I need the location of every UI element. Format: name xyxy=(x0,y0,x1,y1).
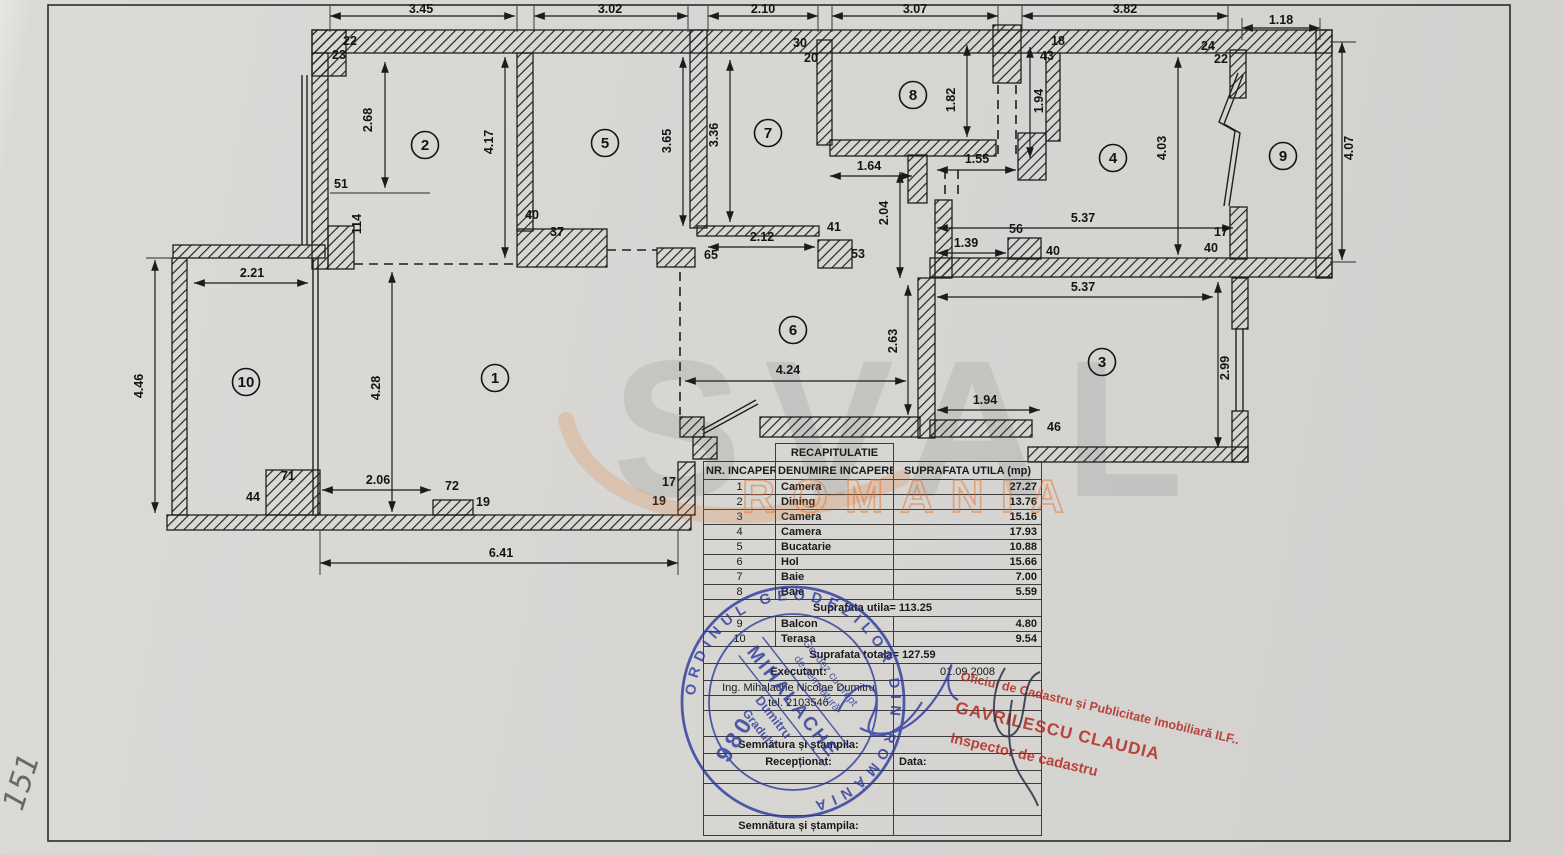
table-cell: 13.76 xyxy=(894,495,1042,510)
dimension-label: 37 xyxy=(550,225,564,239)
wall-segment xyxy=(172,258,187,515)
table-cell: SUPRAFATA UTILA (mp) xyxy=(894,462,1042,480)
table-row: 8Baie5.59 xyxy=(704,585,1042,600)
wall-segment xyxy=(817,40,832,145)
table-row xyxy=(704,771,1042,784)
door-leaf xyxy=(703,404,758,434)
wall-segment xyxy=(1230,207,1247,259)
room-number-circle xyxy=(1089,349,1116,376)
table-row: tel. 2103546 xyxy=(704,696,1042,711)
dimension-label: 3.65 xyxy=(660,129,674,153)
table-cell: 5.59 xyxy=(894,585,1042,600)
room-number-circle xyxy=(592,130,619,157)
wall-segment xyxy=(1028,447,1248,462)
table-cell xyxy=(894,816,1042,836)
table-cell: Baie xyxy=(776,585,894,600)
dimension-label: 65 xyxy=(704,248,718,262)
dimension-label: 3.82 xyxy=(1113,2,1137,16)
balcony-break-line xyxy=(1224,75,1243,206)
wall-segment xyxy=(312,30,346,76)
table-row: 1Camera27.27 xyxy=(704,480,1042,495)
dimension-label: 53 xyxy=(851,247,865,261)
room-number-circle xyxy=(900,82,927,109)
dimension-label: 4.24 xyxy=(776,363,800,377)
table-cell: Semnătura și ștampila: xyxy=(704,816,894,836)
table-cell: Suprafata utila= 113.25 xyxy=(704,600,1042,617)
room-number: 3 xyxy=(1098,354,1106,371)
dimension-label: 6.41 xyxy=(489,546,513,560)
dimension-label: 22 xyxy=(1214,52,1228,66)
table-row xyxy=(704,711,1042,737)
dimension-label: 5.37 xyxy=(1071,280,1095,294)
wall-segment xyxy=(935,200,952,278)
table-cell: Dining xyxy=(776,495,894,510)
dimension-label: 19 xyxy=(652,494,666,508)
table-cell xyxy=(894,784,1042,816)
wall-segment xyxy=(433,500,473,515)
table-cell xyxy=(894,681,1042,696)
table-cell: 15.66 xyxy=(894,555,1042,570)
dimension-label: 2.63 xyxy=(886,329,900,353)
table-cell: tel. 2103546 xyxy=(704,696,894,711)
table-row: Semnătura și ștampila: xyxy=(704,816,1042,836)
wall-segment xyxy=(173,245,325,258)
dimension-label: 2.99 xyxy=(1218,356,1232,380)
table-row: Semnătura și ștampila: xyxy=(704,737,1042,754)
table-cell: 5 xyxy=(704,540,776,555)
table-cell: Suprafata totala= 127.59 xyxy=(704,647,1042,664)
table-cell: 4.80 xyxy=(894,617,1042,632)
room-number-circle xyxy=(1100,145,1127,172)
dimension-label: 72 xyxy=(445,479,459,493)
wall-segment xyxy=(312,53,328,269)
room-number: 7 xyxy=(764,125,772,142)
dimension-label: 3.45 xyxy=(409,2,433,16)
dimension-label: 3.02 xyxy=(598,2,622,16)
dimension-label: 4.46 xyxy=(132,374,146,398)
table-cell: 15.16 xyxy=(894,510,1042,525)
wall-segment xyxy=(1232,411,1248,462)
scanned-floor-plan-page: 151 xyxy=(0,0,1563,855)
wall-segment xyxy=(517,53,533,231)
table-row: RECAPITULATIE xyxy=(704,444,1042,462)
wall-segment xyxy=(818,240,852,268)
room-number-circle xyxy=(233,369,260,396)
table-cell: 17.93 xyxy=(894,525,1042,540)
dimension-label: 40 xyxy=(525,208,539,222)
table-cell: 3 xyxy=(704,510,776,525)
table-row: Executant:01.09.2008 xyxy=(704,664,1042,681)
wall-segment xyxy=(908,155,927,203)
room-number: 8 xyxy=(909,87,917,104)
table-cell: Terasa xyxy=(776,632,894,647)
dimension-label: 4.17 xyxy=(482,130,496,154)
dimension-label: 44 xyxy=(246,490,260,504)
dimension-label: 18 xyxy=(1051,34,1065,48)
dimension-label: 17 xyxy=(1214,225,1228,239)
table-cell: NR. INCAPERE xyxy=(704,462,776,480)
dashed-openings xyxy=(354,85,1016,415)
dimension-label: 1.55 xyxy=(965,152,989,166)
table-cell xyxy=(704,711,894,737)
table-cell: Camera xyxy=(776,525,894,540)
dimension-label: 2.21 xyxy=(240,266,264,280)
dimension-label: 2.06 xyxy=(366,473,390,487)
recapitulation-table: RECAPITULATIENR. INCAPEREDENUMIRE INCAPE… xyxy=(703,443,1042,836)
table-cell: DENUMIRE INCAPERE xyxy=(776,462,894,480)
table-cell: RECAPITULATIE xyxy=(776,444,894,462)
dimension-label: 4.03 xyxy=(1155,136,1169,160)
wall-segment xyxy=(1018,133,1046,180)
room-number: 1 xyxy=(491,370,499,387)
wall-segment xyxy=(1230,50,1246,98)
table-row: Ing. Mihalache Nicolae Dumitru xyxy=(704,681,1042,696)
table-cell: 2 xyxy=(704,495,776,510)
dimension-label: 1.82 xyxy=(944,88,958,112)
dimension-label: 30 xyxy=(793,36,807,50)
table-cell: Camera xyxy=(776,480,894,495)
room-number-circle xyxy=(780,317,807,344)
wall-segment xyxy=(993,25,1021,83)
wall-segment xyxy=(1046,53,1060,141)
table-cell: Balcon xyxy=(776,617,894,632)
table-cell: 7 xyxy=(704,570,776,585)
table-cell xyxy=(704,444,776,462)
room-number-circle xyxy=(1270,143,1297,170)
table-row: Suprafata utila= 113.25 xyxy=(704,600,1042,617)
dimension-label: 114 xyxy=(350,214,364,234)
table-row: 3Camera15.16 xyxy=(704,510,1042,525)
table-row: 10Terasa9.54 xyxy=(704,632,1042,647)
dimension-label: 3.07 xyxy=(903,2,927,16)
table-cell: 10 xyxy=(704,632,776,647)
table-cell: Baie xyxy=(776,570,894,585)
dimension-label: 2.04 xyxy=(877,201,891,225)
wall-segment xyxy=(760,417,920,437)
dimension-label: 56 xyxy=(1009,222,1023,236)
dimension-label: 1.94 xyxy=(1032,89,1046,113)
wall-segment xyxy=(1232,278,1248,329)
wall-segment xyxy=(312,30,1332,53)
dimension-label: 40 xyxy=(1046,244,1060,258)
wall-segment xyxy=(690,30,707,228)
room-number-circle xyxy=(412,132,439,159)
dimension-label: 41 xyxy=(827,220,841,234)
dimension-label: 23 xyxy=(332,48,346,62)
dimension-label: 2.12 xyxy=(750,230,774,244)
dimension-label: 1.94 xyxy=(973,393,997,407)
room-number: 9 xyxy=(1279,148,1287,165)
dimension-label: 5.37 xyxy=(1071,211,1095,225)
dimension-label: 2.10 xyxy=(751,2,775,16)
table-cell: 6 xyxy=(704,555,776,570)
table-row: 6Hol15.66 xyxy=(704,555,1042,570)
wall-segment xyxy=(930,420,1032,437)
dimension-label: 1.18 xyxy=(1269,13,1293,27)
table-cell: 1 xyxy=(704,480,776,495)
dimension-label: 2.68 xyxy=(361,108,375,132)
table-cell: 7.00 xyxy=(894,570,1042,585)
dimension-label: 71 xyxy=(281,469,295,483)
dimension-label: 4.28 xyxy=(369,376,383,400)
dimension-label: 22 xyxy=(343,34,357,48)
table-cell: Camera xyxy=(776,510,894,525)
table-cell: 01.09.2008 xyxy=(894,664,1042,681)
wall-segment xyxy=(830,140,996,156)
table-cell: 4 xyxy=(704,525,776,540)
room-number: 2 xyxy=(421,137,429,154)
room-number-circle xyxy=(755,120,782,147)
table-cell: 9 xyxy=(704,617,776,632)
table-cell: Data: xyxy=(894,754,1042,771)
dimension-label: 46 xyxy=(1047,420,1061,434)
wall-segment xyxy=(697,226,819,236)
balcony-break-line xyxy=(1219,73,1238,206)
table-cell: Semnătura și ștampila: xyxy=(704,737,894,754)
table-cell: Hol xyxy=(776,555,894,570)
wall-segment xyxy=(680,417,704,437)
dimension-label: 43 xyxy=(1040,49,1054,63)
room-number: 6 xyxy=(789,322,797,339)
wall-segment xyxy=(266,470,320,515)
table-row: 9Balcon4.80 xyxy=(704,617,1042,632)
wall-segment xyxy=(657,248,695,267)
dimension-label: 17 xyxy=(662,475,676,489)
wall-segment xyxy=(328,226,354,269)
door-leaf xyxy=(702,400,756,430)
dimension-label: 40 xyxy=(1204,241,1218,255)
wall-segment xyxy=(678,462,695,515)
table-row: 2Dining13.76 xyxy=(704,495,1042,510)
table-cell: 10.88 xyxy=(894,540,1042,555)
wall-segment xyxy=(930,258,1332,277)
table-row: 7Baie7.00 xyxy=(704,570,1042,585)
handwritten-page-number: 151 xyxy=(0,749,47,814)
wall-segment xyxy=(918,278,935,438)
room-number: 10 xyxy=(238,374,255,391)
wall-segment xyxy=(167,515,691,530)
table-cell xyxy=(704,784,894,816)
dimension-label: 1.39 xyxy=(954,236,978,250)
table-cell xyxy=(894,444,1042,462)
table-cell: 9.54 xyxy=(894,632,1042,647)
table-cell xyxy=(704,771,894,784)
dimension-label: 51 xyxy=(334,177,348,191)
dimension-label: 1.64 xyxy=(857,159,881,173)
wall-segment xyxy=(1008,238,1041,259)
table-cell: Bucatarie xyxy=(776,540,894,555)
table-cell: Ing. Mihalache Nicolae Dumitru xyxy=(704,681,894,696)
dimension-label: 4.07 xyxy=(1342,136,1356,160)
table-row xyxy=(704,784,1042,816)
table-cell: 8 xyxy=(704,585,776,600)
dimension-label: 24 xyxy=(1201,39,1215,53)
table-cell: 27.27 xyxy=(894,480,1042,495)
table-cell xyxy=(894,711,1042,737)
wall-segment xyxy=(517,229,607,267)
table-row: 5Bucatarie10.88 xyxy=(704,540,1042,555)
room-number: 4 xyxy=(1109,150,1118,167)
wall-segment xyxy=(1316,30,1332,278)
table-row: NR. INCAPEREDENUMIRE INCAPERESUPRAFATA U… xyxy=(704,462,1042,480)
table-cell: Recepționat: xyxy=(704,754,894,771)
table-cell: Executant: xyxy=(704,664,894,681)
table-cell xyxy=(894,771,1042,784)
dimension-label: 3.36 xyxy=(707,123,721,147)
table-row: Recepționat:Data: xyxy=(704,754,1042,771)
table-row: 4Camera17.93 xyxy=(704,525,1042,540)
dimension-label: 20 xyxy=(804,51,818,65)
room-number: 5 xyxy=(601,135,609,152)
room-number-circle xyxy=(482,365,509,392)
table-row: Suprafata totala= 127.59 xyxy=(704,647,1042,664)
table-cell xyxy=(894,737,1042,754)
room-numbers: 12345678910 xyxy=(233,82,1297,396)
dimension-label: 19 xyxy=(476,495,490,509)
table-cell xyxy=(894,696,1042,711)
